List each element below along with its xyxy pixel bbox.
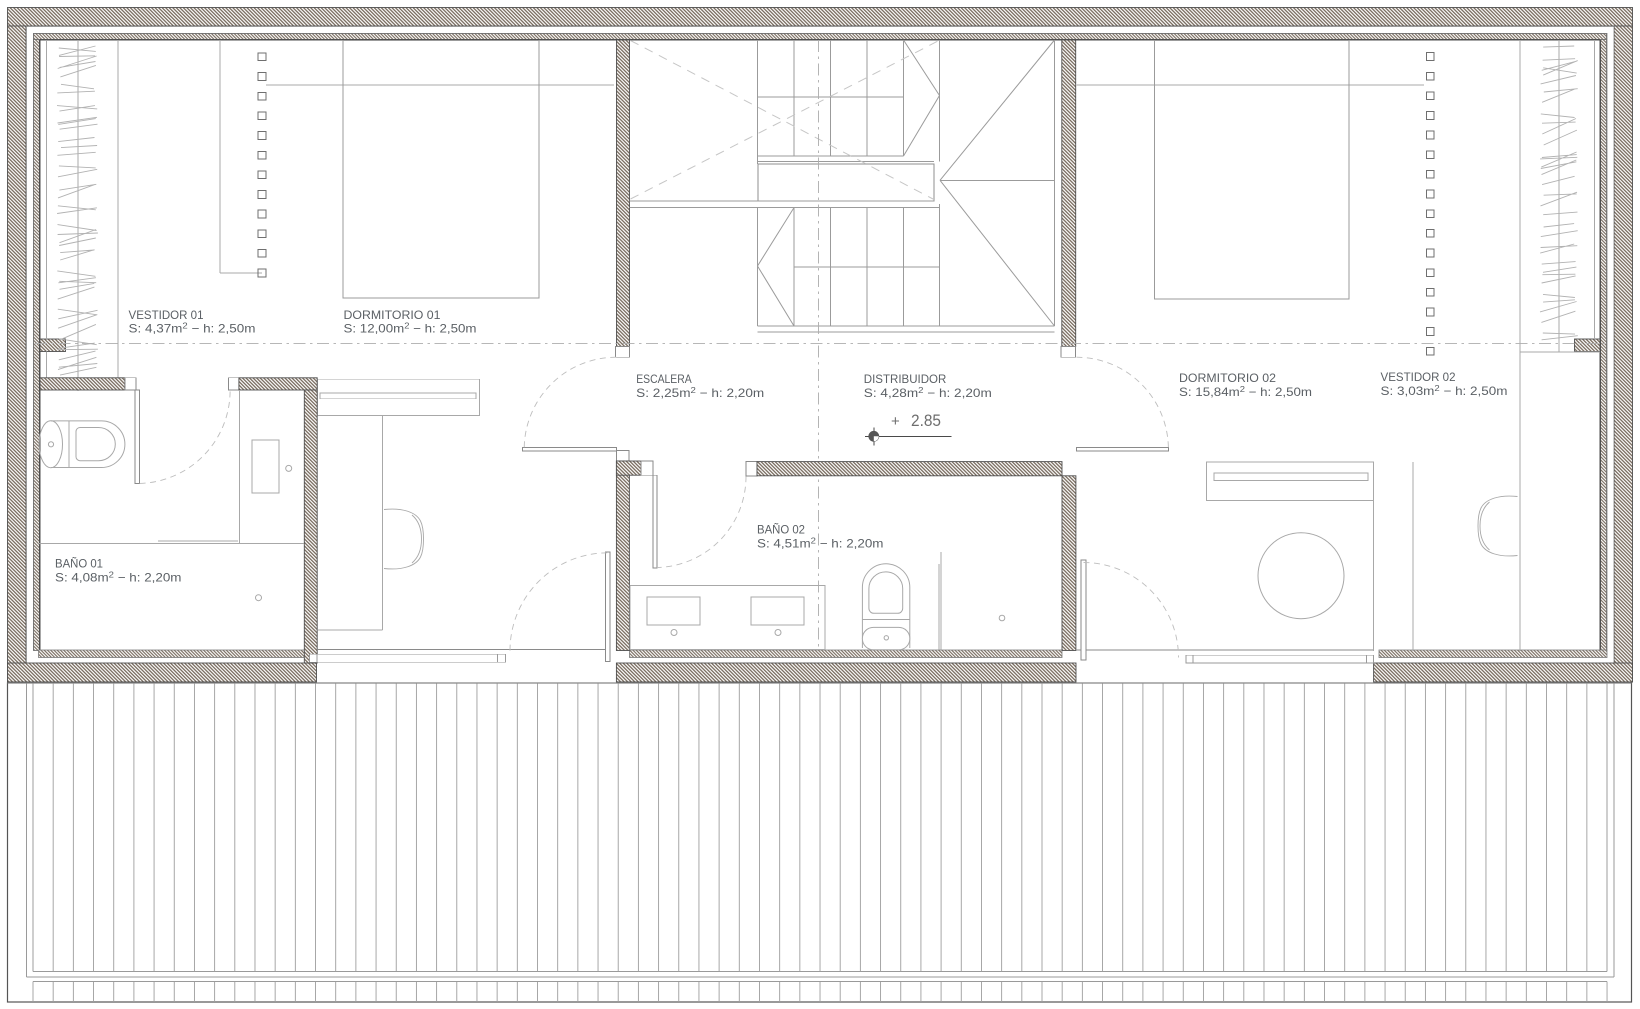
svg-text:S: 4,28m2 − h: 2,20m: S: 4,28m2 − h: 2,20m — [864, 385, 992, 400]
svg-text:VESTIDOR 01: VESTIDOR 01 — [129, 308, 204, 322]
svg-text:DORMITORIO 01: DORMITORIO 01 — [344, 308, 441, 322]
svg-text:S: 2,25m2 − h: 2,20m: S: 2,25m2 − h: 2,20m — [636, 385, 764, 400]
svg-text:BAÑO 02: BAÑO 02 — [757, 523, 805, 537]
svg-text:S: 4,37m2 − h: 2,50m: S: 4,37m2 − h: 2,50m — [129, 321, 256, 336]
svg-text:S: 3,03m2 − h: 2,50m: S: 3,03m2 − h: 2,50m — [1381, 383, 1508, 398]
svg-text:ESCALERA: ESCALERA — [636, 372, 692, 386]
svg-text:2.85: 2.85 — [911, 412, 941, 430]
svg-text:VESTIDOR 02: VESTIDOR 02 — [1381, 370, 1456, 384]
svg-text:S: 4,51m2 − h: 2,20m: S: 4,51m2 − h: 2,20m — [757, 535, 884, 550]
svg-text:S: 12,00m2 − h: 2,50m: S: 12,00m2 − h: 2,50m — [344, 321, 477, 336]
svg-text:DISTRIBUIDOR: DISTRIBUIDOR — [864, 372, 947, 386]
svg-text:S: 4,08m2 − h: 2,20m: S: 4,08m2 − h: 2,20m — [55, 569, 182, 584]
svg-text:+: + — [891, 413, 900, 430]
svg-text:DORMITORIO 02: DORMITORIO 02 — [1179, 371, 1276, 385]
svg-text:BAÑO 01: BAÑO 01 — [55, 557, 103, 571]
svg-text:S: 15,84m2 − h: 2,50m: S: 15,84m2 − h: 2,50m — [1179, 384, 1312, 399]
